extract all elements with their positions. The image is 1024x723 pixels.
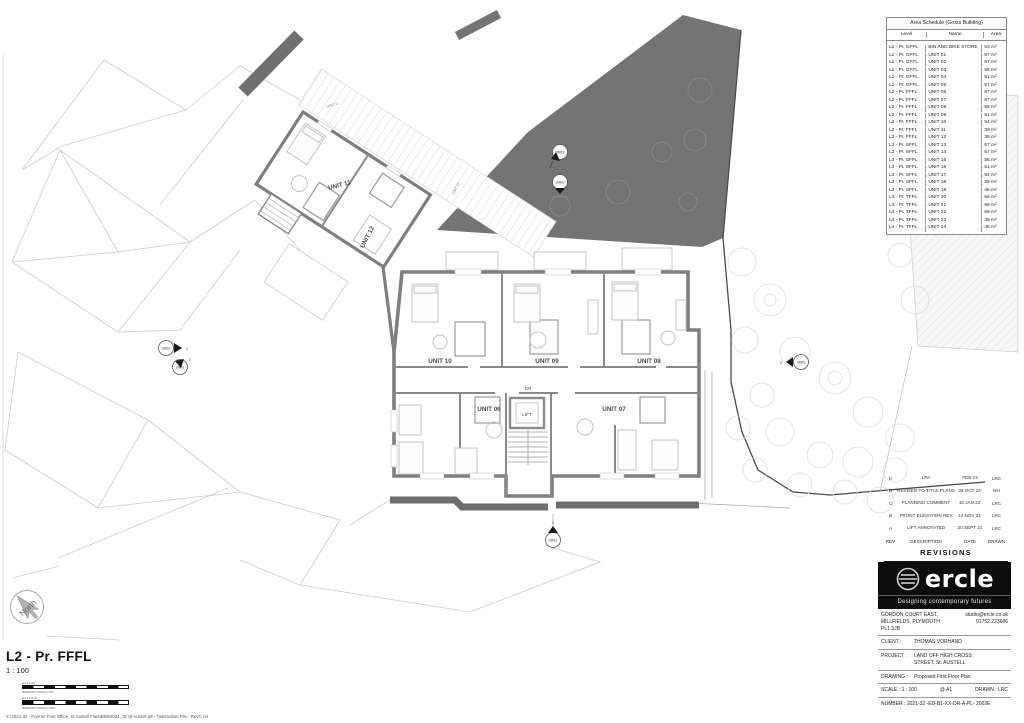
cell-level: L2 - Pr. FFFL	[887, 135, 925, 142]
lift-label: LIFT	[522, 412, 532, 417]
table-row: DREVISED TO TITLE PLANS25 OCT 22'NH	[884, 485, 1008, 498]
column-header-level: Level	[887, 32, 926, 39]
cell-drawn: LRC	[985, 501, 1008, 506]
table-row: L4 - Pr. TFFLUNIT 2269 m²	[887, 210, 1006, 217]
floor-plan-canvas: UNIT 10 UNIT 09 UNIT 08 UNIT 06 UNIT 07 …	[0, 0, 1024, 723]
studio-email: studio@ercle.co.uk	[965, 612, 1008, 619]
area-schedule-header: Level Name Area	[887, 30, 1006, 41]
svg-text:3000: 3000	[556, 180, 566, 185]
revisions-table: ELPAFEB 23LRCDREVISED TO TITLE PLANS25 O…	[884, 472, 1008, 563]
cell-area: 39 m²	[981, 218, 1006, 225]
table-row: L3 - Pr. SFFLUNIT 1556 m²	[887, 157, 1006, 164]
cell-rev: B	[884, 513, 897, 518]
table-row: L3 - Pr. SFFLUNIT 1367 m²	[887, 142, 1006, 149]
logo-tagline: Designing contemporary futures	[878, 595, 1011, 605]
scalebar-1	[22, 685, 129, 690]
cell-drawn: LRC	[985, 513, 1008, 518]
studio-phone: 01752 223686	[965, 619, 1008, 626]
cell-rev: C	[884, 501, 897, 506]
cell-drawn: NH	[985, 488, 1008, 493]
cell-name: UNIT 13	[925, 143, 981, 150]
cell-rev: D	[884, 488, 897, 493]
project-name: LAND OFF HIGH CROSS STREET, St. AUSTELL	[914, 653, 1008, 667]
svg-text:3001: 3001	[176, 365, 186, 370]
cell-level: L1 - Pr. GFFL	[887, 68, 925, 75]
column-header-date: DATE	[955, 539, 985, 544]
scalebar2-label: GRAPHIC SCALE 1:100	[22, 706, 129, 710]
cell-area: 51 m²	[981, 75, 1006, 82]
cell-level: L4 - Pr. TFFL	[887, 210, 925, 217]
cell-area: 39 m²	[981, 180, 1006, 187]
cell-level: L2 - Pr. FFFL	[887, 120, 925, 127]
svg-text:1: 1	[552, 521, 554, 525]
cell-description: FRONT ELEVATION REV	[897, 513, 955, 519]
revisions-body: ELPAFEB 23LRCDREVISED TO TITLE PLANS25 O…	[884, 472, 1008, 535]
cell-area: 63 m²	[981, 45, 1006, 52]
cell-level: L1 - Pr. GFFL	[887, 60, 925, 67]
cell-level: L4 - Pr. TFFL	[887, 195, 925, 202]
client-name: THOMAS VORHAND	[914, 639, 1008, 646]
cell-level: L2 - Pr. FFFL	[887, 113, 925, 120]
scale-row: SCALE : 1 : 100 @ A1 DRAWN : LRC	[878, 683, 1011, 697]
graphic-scale-bars: 0 1 2 3 4 5 GRAPHIC SCALE 1:50 0 2 4 6 8…	[22, 682, 129, 710]
cell-level: L4 - Pr. TFFL	[887, 203, 925, 210]
svg-text:3002: 3002	[162, 346, 172, 351]
table-row: L1 - Pr. GFFLUNIT 0451 m²	[887, 75, 1006, 82]
column-header-rev: REV	[884, 539, 897, 544]
cell-area: 56 m²	[981, 195, 1006, 202]
cell-area: 67 m²	[981, 90, 1006, 97]
table-row: L1 - Pr. GFFLUNIT 0356 m²	[887, 67, 1006, 74]
table-row: L1 - Pr. GFFLBIN AND BIKE STORE63 m²	[887, 45, 1006, 52]
cell-name: UNIT 20	[925, 195, 981, 202]
dr-label: DR	[525, 386, 532, 391]
column-header-description: DESCRIPTION	[897, 539, 955, 544]
table-row: L3 - Pr. SFFLUNIT 1839 m²	[887, 180, 1006, 187]
cell-name: UNIT 18	[925, 180, 981, 187]
unit-label: UNIT 07	[602, 406, 626, 413]
cell-level: L1 - Pr. GFFL	[887, 83, 925, 90]
cell-name: UNIT 22	[925, 210, 981, 217]
table-row: BFRONT ELEVATION REV12 NOV 21'LRC	[884, 510, 1008, 523]
cell-name: UNIT 11	[925, 128, 981, 135]
cell-area: 39 m²	[981, 128, 1006, 135]
cell-name: UNIT 23	[925, 218, 981, 225]
sheet-size: @ A1	[940, 687, 952, 694]
column-header-name: Name	[926, 32, 983, 39]
file-path: X:\2021-32 - Former Post Office, St Aust…	[6, 714, 236, 719]
cell-level: L3 - Pr. SFFL	[887, 180, 925, 187]
cell-area: 51 m²	[981, 165, 1006, 172]
table-row: L1 - Pr. GFFLUNIT 0267 m²	[887, 60, 1006, 67]
cell-name: UNIT 05	[925, 83, 981, 90]
cell-area: 67 m²	[981, 143, 1006, 150]
cell-name: UNIT 03	[925, 68, 981, 75]
table-row: L2 - Pr. FFFLUNIT 1139 m²	[887, 127, 1006, 134]
cell-description: REVISED TO TITLE PLANS	[897, 488, 955, 494]
cell-area: 56 m²	[981, 105, 1006, 112]
cell-name: UNIT 17	[925, 173, 981, 180]
table-row: L2 - Pr. FFFLUNIT 1054 m²	[887, 120, 1006, 127]
revisions-header: REV DESCRIPTION DATE DRAWN	[884, 539, 1008, 544]
drawing-name: Proposed First Floor Plan	[914, 674, 1008, 681]
column-header-drawn: DRAWN	[985, 539, 1008, 544]
drawing-row: DRAWING : Proposed First Floor Plan	[878, 670, 1011, 684]
column-header-area: Area	[983, 32, 1008, 39]
cell-name: UNIT 07	[925, 98, 981, 105]
table-row: L3 - Pr. SFFLUNIT 1946 m²	[887, 187, 1006, 194]
number-row: NUMBER : 2021-32 -ED-B1-XX-DR-A-PL- 2002…	[878, 697, 1011, 711]
cell-rev: E	[884, 476, 897, 481]
svg-text:3002: 3002	[797, 360, 807, 365]
drawn-by: DRAWN : LRC	[975, 687, 1008, 694]
cell-area: 51 m²	[981, 113, 1006, 120]
cell-name: UNIT 14	[925, 150, 981, 157]
table-row: L4 - Pr. TFFLUNIT 2056 m²	[887, 195, 1006, 202]
company-logo: ercle Designing contemporary futures	[878, 562, 1011, 609]
cell-level: L2 - Pr. FFFL	[887, 105, 925, 112]
table-row: CPLANNING COMMENT10 JAN 22'LRC	[884, 497, 1008, 510]
client-row: CLIENT : THOMAS VORHAND	[878, 635, 1011, 649]
north-arrow: North	[11, 591, 44, 624]
cell-name: UNIT 09	[925, 113, 981, 120]
area-schedule-body: L1 - Pr. GFFLBIN AND BIKE STORE63 m²L1 -…	[887, 41, 1006, 234]
cell-area: 56 m²	[981, 158, 1006, 165]
cell-level: L1 - Pr. GFFL	[887, 53, 925, 60]
cell-name: BIN AND BIKE STORE	[925, 45, 981, 52]
svg-text:3003: 3003	[556, 150, 566, 155]
unit-label: UNIT 08	[637, 358, 661, 365]
cell-name: UNIT 04	[925, 75, 981, 82]
marker-3001-left: 3001 2	[173, 358, 192, 375]
cell-area: 39 m²	[981, 135, 1006, 142]
cell-name: UNIT 24	[925, 225, 981, 232]
cell-area: 67 m²	[981, 98, 1006, 105]
lower-terrace-outline	[264, 244, 348, 321]
table-row: L4 - Pr. TFFLUNIT 2339 m²	[887, 217, 1006, 224]
logo-wordmark: ercle	[925, 567, 994, 591]
cell-area: 54 m²	[981, 173, 1006, 180]
cell-area: 46 m²	[981, 188, 1006, 195]
svg-text:3001: 3001	[549, 538, 559, 543]
cell-area: 46 m²	[981, 225, 1006, 232]
title-block: ercle Designing contemporary futures GOR…	[878, 562, 1011, 711]
cell-date: 20 SEPT 21	[955, 525, 985, 531]
table-row: L1 - Pr. GFFLUNIT 0557 m²	[887, 82, 1006, 89]
drawing-sheet: UNIT 10 UNIT 09 UNIT 08 UNIT 06 UNIT 07 …	[0, 0, 1024, 723]
dark-wall-bar	[457, 14, 499, 36]
cell-level: L4 - Pr. TFFL	[887, 225, 925, 232]
table-row: L3 - Pr. SFFLUNIT 1651 m²	[887, 165, 1006, 172]
table-row: L1 - Pr. GFFLUNIT 0167 m²	[887, 52, 1006, 59]
cell-date: 25 OCT 22'	[955, 488, 985, 494]
cell-area: 67 m²	[981, 53, 1006, 60]
unit-label: UNIT 06	[477, 406, 501, 413]
table-row: L2 - Pr. FFFLUNIT 0767 m²	[887, 97, 1006, 104]
cell-area: 56 m²	[981, 68, 1006, 75]
table-row: L2 - Pr. FFFLUNIT 0856 m²	[887, 105, 1006, 112]
cell-drawn: LRC	[985, 476, 1008, 481]
cell-name: UNIT 10	[925, 120, 981, 127]
cell-level: L2 - Pr. FFFL	[887, 128, 925, 135]
marker-3001-bottom: 3001 1	[546, 514, 561, 548]
table-row: L3 - Pr. SFFLUNIT 1754 m²	[887, 172, 1006, 179]
cell-date: FEB 23	[955, 475, 985, 481]
cell-name: UNIT 19	[925, 188, 981, 195]
cell-level: L3 - Pr. SFFL	[887, 143, 925, 150]
cell-name: UNIT 06	[925, 90, 981, 97]
cell-level: L1 - Pr. GFFL	[887, 45, 925, 52]
cell-name: UNIT 08	[925, 105, 981, 112]
cell-level: L3 - Pr. SFFL	[887, 173, 925, 180]
unit-label: UNIT 10	[428, 358, 452, 365]
cell-name: UNIT 01	[925, 53, 981, 60]
svg-text:2: 2	[780, 361, 782, 365]
scalebar1-label: GRAPHIC SCALE 1:50	[22, 690, 129, 694]
view-scale: 1 : 100	[6, 666, 236, 675]
table-row: L4 - Pr. TFFLUNIT 2446 m²	[887, 225, 1006, 232]
cell-description: PLANNING COMMENT	[897, 500, 955, 506]
drawing-number: NUMBER : 2021-32 -ED-B1-XX-DR-A-PL- 2002…	[881, 701, 990, 708]
svg-text:1: 1	[186, 347, 188, 351]
cell-area: 69 m²	[981, 210, 1006, 217]
view-name: L2 - Pr. FFFL	[6, 649, 236, 664]
link-wall	[383, 267, 394, 352]
marker-3002-left: 3002 1	[159, 341, 189, 356]
cell-level: L2 - Pr. FFFL	[887, 90, 925, 97]
cell-name: UNIT 15	[925, 158, 981, 165]
area-schedule-table: Area Schedule (Gross Building) Level Nam…	[886, 17, 1007, 235]
table-row: L2 - Pr. FFFLUNIT 1239 m²	[887, 135, 1006, 142]
studio-address: GORDON COURT EAST, MILLFIELDS, PLYMOUTH …	[878, 609, 1011, 635]
scalebar-2	[22, 700, 129, 705]
cell-area: 57 m²	[981, 83, 1006, 90]
cell-level: L3 - Pr. SFFL	[887, 188, 925, 195]
svg-text:2: 2	[189, 358, 191, 362]
cell-drawn: LRC	[985, 526, 1008, 531]
cell-description: LIFT ANNOTATED	[897, 525, 955, 531]
cell-area: 54 m²	[981, 120, 1006, 127]
cell-date: 10 JAN 22'	[955, 500, 985, 506]
cell-level: L4 - Pr. TFFL	[887, 218, 925, 225]
scale-value: SCALE : 1 : 100	[881, 687, 917, 694]
cell-level: L3 - Pr. SFFL	[887, 158, 925, 165]
cell-area: 67 m²	[981, 150, 1006, 157]
table-row: L4 - Pr. TFFLUNIT 2199 m²	[887, 202, 1006, 209]
cell-name: UNIT 02	[925, 60, 981, 67]
unit-label: UNIT 09	[535, 358, 559, 365]
cell-area: 67 m²	[981, 60, 1006, 67]
project-row: PROJECT : LAND OFF HIGH CROSS STREET, St…	[878, 649, 1011, 670]
table-row: L3 - Pr. SFFLUNIT 1467 m²	[887, 150, 1006, 157]
table-row: L2 - Pr. FFFLUNIT 0667 m²	[887, 90, 1006, 97]
contact-lines: studio@ercle.co.uk 01752 223686	[965, 612, 1008, 632]
revisions-title: REVISIONS	[884, 548, 1008, 557]
view-title-block: L2 - Pr. FFFL 1 : 100 0 1 2 3 4 5 GRAPHI…	[6, 649, 236, 719]
cell-level: L3 - Pr. SFFL	[887, 165, 925, 172]
cell-rev: A	[884, 526, 897, 531]
table-row: ALIFT ANNOTATED20 SEPT 21LRC	[884, 522, 1008, 535]
address-lines: GORDON COURT EAST, MILLFIELDS, PLYMOUTH …	[881, 612, 940, 632]
cell-level: L1 - Pr. GFFL	[887, 75, 925, 82]
main-block	[390, 248, 699, 507]
table-row: L2 - Pr. FFFLUNIT 0951 m²	[887, 112, 1006, 119]
ercle-logo-icon	[895, 566, 921, 592]
cell-area: 99 m²	[981, 203, 1006, 210]
cell-date: 12 NOV 21'	[955, 513, 985, 519]
cell-level: L2 - Pr. FFFL	[887, 98, 925, 105]
balconies	[446, 248, 672, 270]
cell-name: UNIT 12	[925, 135, 981, 142]
terrace-edge-left	[390, 500, 548, 507]
table-row: ELPAFEB 23LRC	[884, 472, 1008, 485]
cell-description: LPA	[897, 475, 955, 481]
cell-name: UNIT 16	[925, 165, 981, 172]
cell-name: UNIT 21	[925, 203, 981, 210]
area-schedule-title: Area Schedule (Gross Building)	[887, 18, 1006, 30]
cell-level: L3 - Pr. SFFL	[887, 150, 925, 157]
